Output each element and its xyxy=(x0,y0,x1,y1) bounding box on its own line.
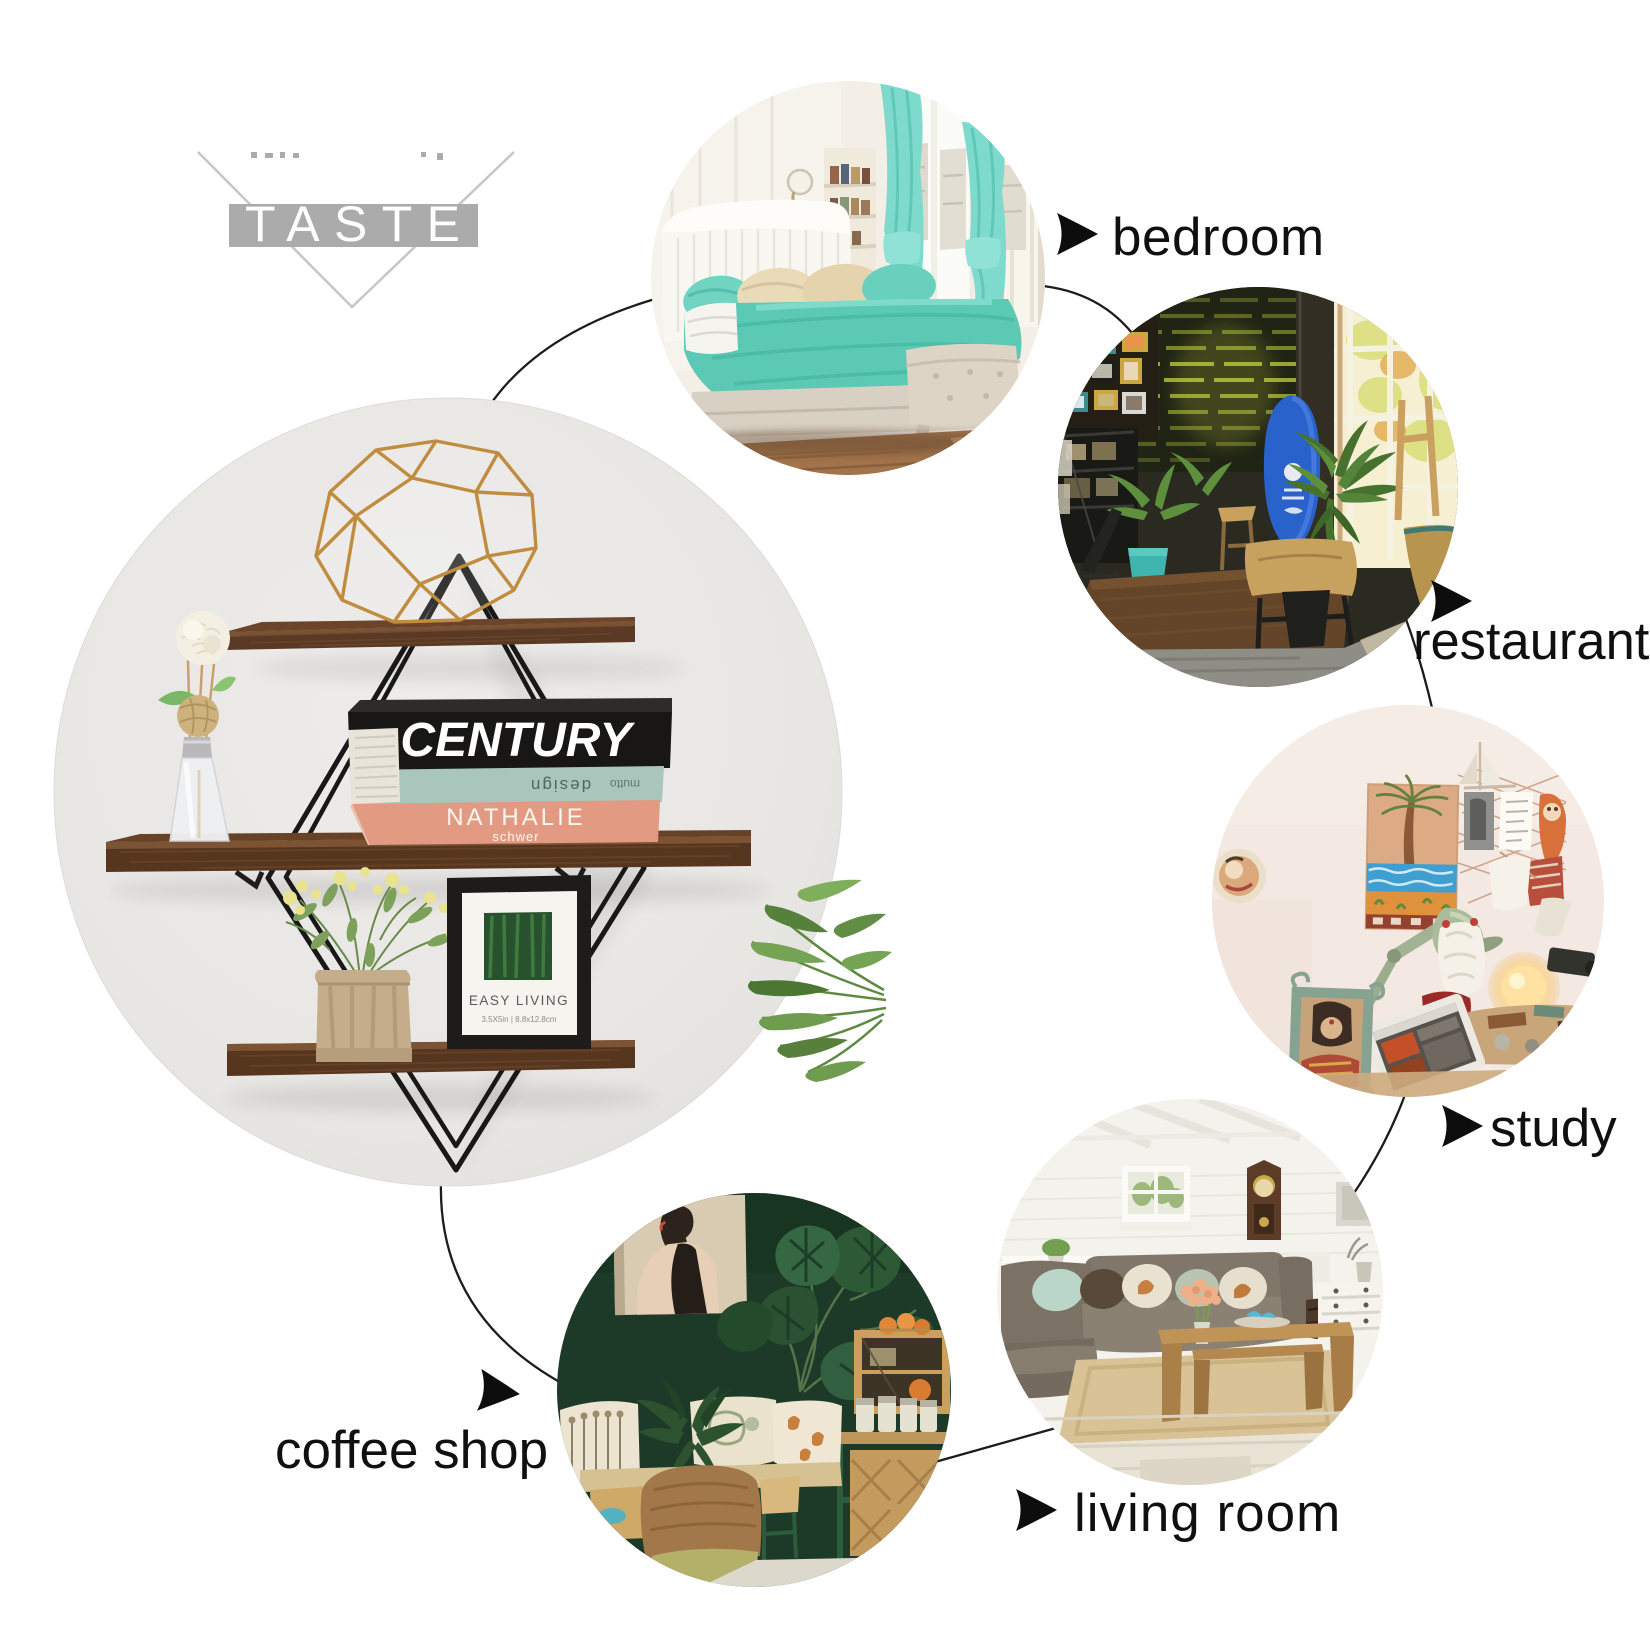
svg-text:3.5X5in | 8.8x12.8cm: 3.5X5in | 8.8x12.8cm xyxy=(481,1015,556,1024)
svg-text:coffee shop: coffee shop xyxy=(275,1421,548,1480)
svg-text:EASY LIVING: EASY LIVING xyxy=(469,993,569,1008)
svg-text:living room: living room xyxy=(1074,1484,1341,1543)
svg-text:NATHALIE: NATHALIE xyxy=(446,804,586,831)
svg-text:bedroom: bedroom xyxy=(1112,208,1325,267)
svg-text:design: design xyxy=(529,776,591,795)
svg-text:CENTURY: CENTURY xyxy=(400,714,635,767)
svg-text:TASTE: TASTE xyxy=(245,196,474,252)
svg-text:mutto: mutto xyxy=(610,777,640,791)
svg-text:study: study xyxy=(1490,1099,1617,1158)
svg-text:schwer: schwer xyxy=(492,829,539,844)
svg-text:restaurant: restaurant xyxy=(1413,612,1650,671)
